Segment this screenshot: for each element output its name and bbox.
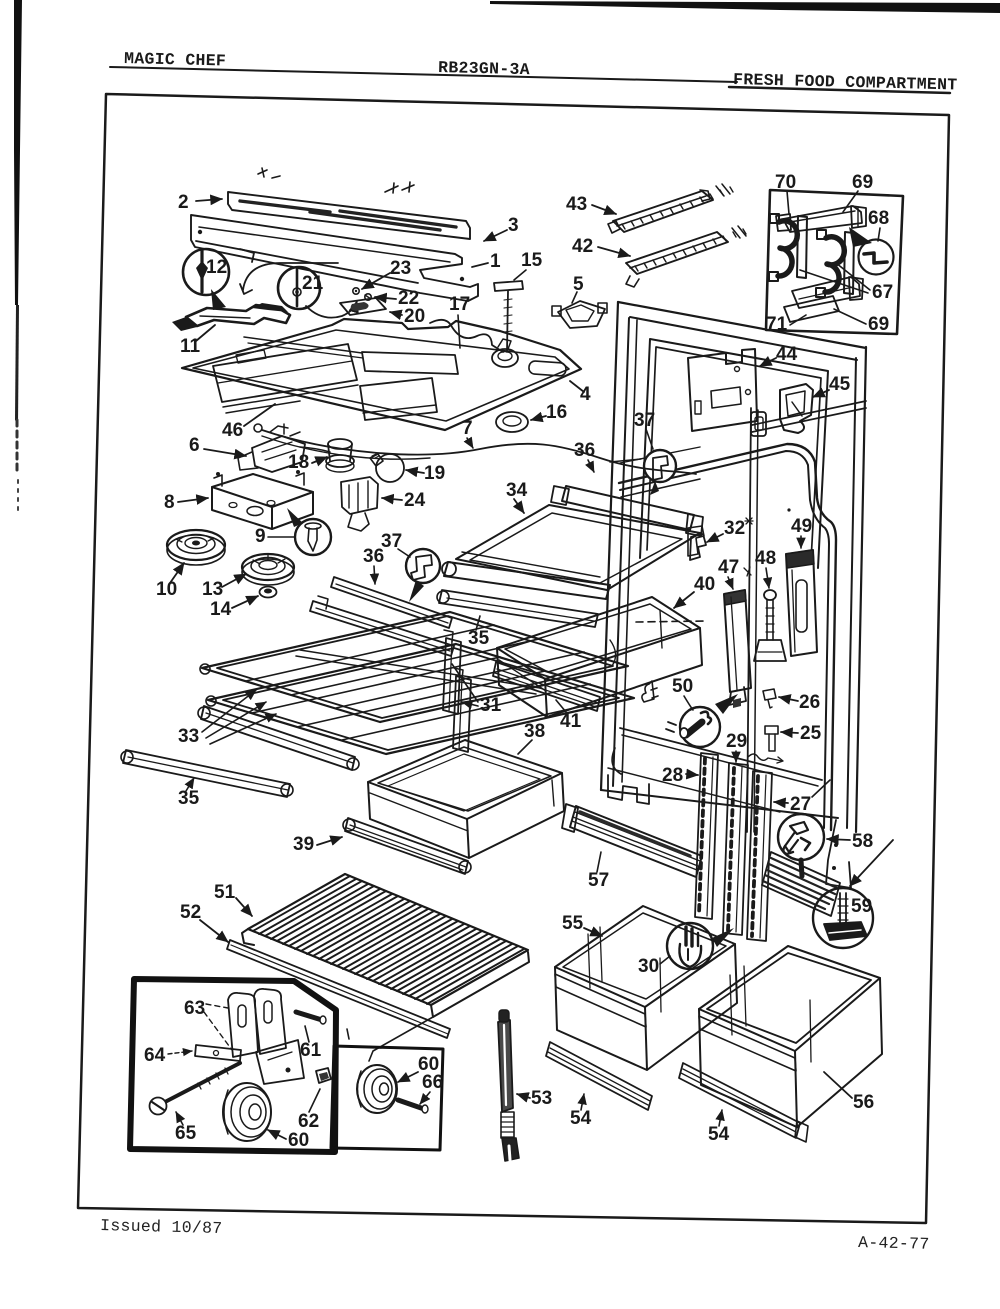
svg-text:26: 26 [799,692,820,713]
svg-text:43: 43 [566,194,587,215]
svg-text:Issued 10/87: Issued 10/87 [100,1216,223,1238]
svg-text:51: 51 [214,882,236,903]
svg-text:66: 66 [422,1072,443,1093]
svg-text:2: 2 [178,192,189,213]
svg-text:40: 40 [694,574,715,595]
svg-text:54: 54 [708,1124,730,1145]
svg-text:39: 39 [293,834,314,855]
svg-text:47: 47 [718,557,739,578]
svg-text:62: 62 [298,1111,319,1132]
svg-text:27: 27 [790,794,811,815]
svg-text:64: 64 [144,1045,166,1066]
svg-text:20: 20 [404,306,425,327]
svg-text:69: 69 [868,314,889,335]
svg-text:30: 30 [638,956,659,977]
svg-text:55: 55 [562,913,584,934]
svg-text:35: 35 [178,788,200,809]
svg-text:32: 32 [724,518,745,539]
svg-text:52: 52 [180,902,201,923]
svg-text:48: 48 [755,548,776,569]
svg-text:33: 33 [178,726,199,747]
svg-text:70: 70 [775,172,796,193]
svg-text:25: 25 [800,723,822,744]
svg-text:6: 6 [189,435,200,456]
svg-text:53: 53 [531,1088,552,1109]
svg-text:37: 37 [634,410,655,431]
svg-text:44: 44 [776,344,798,365]
svg-text:58: 58 [852,831,873,852]
svg-text:68: 68 [868,208,889,229]
svg-text:67: 67 [872,282,893,303]
svg-text:28: 28 [662,765,683,786]
svg-text:A-42-77: A-42-77 [858,1233,930,1254]
svg-text:3: 3 [508,215,519,236]
svg-text:35: 35 [468,628,490,649]
svg-text:19: 19 [424,463,445,484]
svg-text:46: 46 [222,420,243,441]
svg-text:4: 4 [580,384,591,405]
svg-text:12: 12 [206,257,227,278]
svg-text:5: 5 [573,274,584,295]
svg-text:60: 60 [288,1130,309,1151]
svg-text:10: 10 [156,579,177,600]
svg-text:71: 71 [766,314,788,335]
svg-text:59: 59 [851,896,872,917]
svg-text:54: 54 [570,1108,592,1129]
svg-text:24: 24 [404,490,426,511]
svg-text:17: 17 [449,294,470,315]
svg-text:16: 16 [546,402,567,423]
svg-text:65: 65 [175,1123,197,1144]
svg-text:18: 18 [288,452,309,473]
svg-text:63: 63 [184,998,205,1019]
svg-text:56: 56 [853,1092,874,1113]
svg-text:45: 45 [829,374,851,395]
svg-text:8: 8 [164,492,175,513]
svg-text:7: 7 [462,418,473,439]
svg-text:23: 23 [390,258,411,279]
svg-text:38: 38 [524,721,545,742]
svg-text:1: 1 [490,251,501,272]
svg-text:31: 31 [480,695,502,716]
svg-text:50: 50 [672,676,693,697]
svg-text:9: 9 [255,526,266,547]
svg-text:14: 14 [210,599,232,620]
svg-text:34: 34 [506,480,528,501]
svg-text:36: 36 [363,546,384,567]
svg-text:15: 15 [521,250,543,271]
svg-text:57: 57 [588,870,609,891]
svg-text:13: 13 [202,579,223,600]
svg-text:49: 49 [791,516,812,537]
svg-text:21: 21 [302,273,324,294]
svg-text:29: 29 [726,731,747,752]
svg-text:61: 61 [300,1040,322,1061]
svg-text:69: 69 [852,172,873,193]
svg-text:42: 42 [572,236,593,257]
